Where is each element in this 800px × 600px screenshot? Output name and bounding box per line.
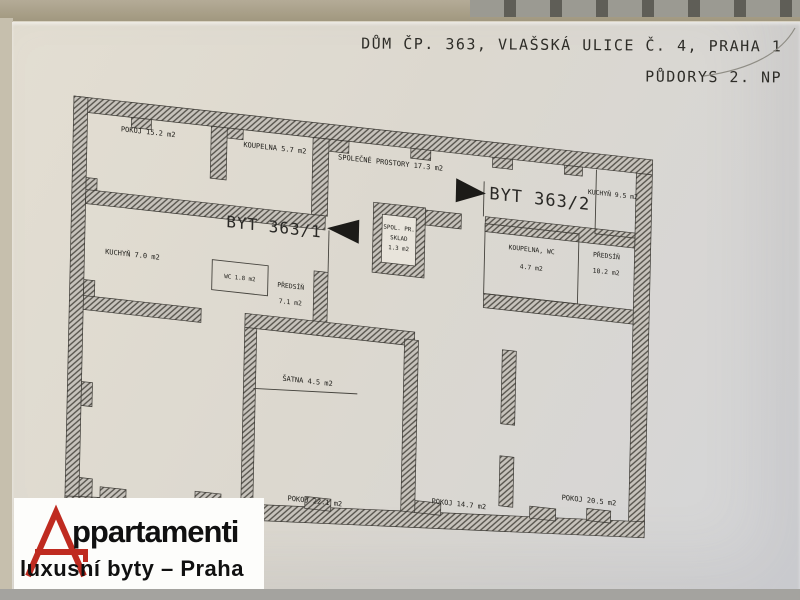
logo-word: ppartamenti: [72, 514, 238, 550]
room-label-koupelnawc-1: KOUPELNA, WC: [508, 243, 554, 256]
logo-tagline: luxusní byty – Praha: [20, 556, 244, 582]
plan-header: DŮM ČP. 363, VLAŠSKÁ ULICE Č. 4, PRAHA 1…: [361, 29, 783, 94]
room-label-predsin71-2: 7.1 m2: [279, 297, 302, 308]
floor-plan-photo: DŮM ČP. 363, VLAŠSKÁ ULICE Č. 4, PRAHA 1…: [0, 0, 800, 600]
header-line2: PŮDORYS 2. NP: [645, 68, 782, 87]
logo-word-rest: ppartamenti: [72, 514, 238, 549]
room-label-koupelnawc-2: 4.7 m2: [520, 262, 543, 273]
entrance-arrow-byt1-icon: [327, 216, 359, 244]
room-label-pokoj205: POKOJ 20.5 m2: [562, 493, 617, 508]
room-label-koupelna57: KOUPELNA 5.7 m2: [243, 140, 306, 156]
room-label-pokoj152: POKOJ 15.2 m2: [121, 124, 176, 139]
room-label-predsin102-2: 10.2 m2: [593, 267, 620, 278]
agency-logo: ppartamenti luxusní byty – Praha: [14, 498, 264, 590]
photo-bottom-edge: [0, 589, 800, 600]
room-label-predsin102-1: PŘEDSÍŇ: [593, 250, 620, 262]
unit-label-byt2: BYT 363/2: [489, 184, 590, 215]
room-label-kuchyn70: KUCHYŇ 7.0 m2: [105, 247, 160, 262]
entrance-arrow-byt2-icon: [456, 178, 486, 205]
room-label-predsin71-1: PŘEDSÍŇ: [277, 280, 304, 292]
binder-tabs: [470, 0, 800, 17]
room-label-satna: ŠATNA 4.5 m2: [282, 374, 333, 389]
header-line1: DŮM ČP. 363, VLAŠSKÁ ULICE Č. 4, PRAHA 1: [361, 35, 782, 56]
room-label-wc: WC 1.8 m2: [224, 274, 255, 283]
